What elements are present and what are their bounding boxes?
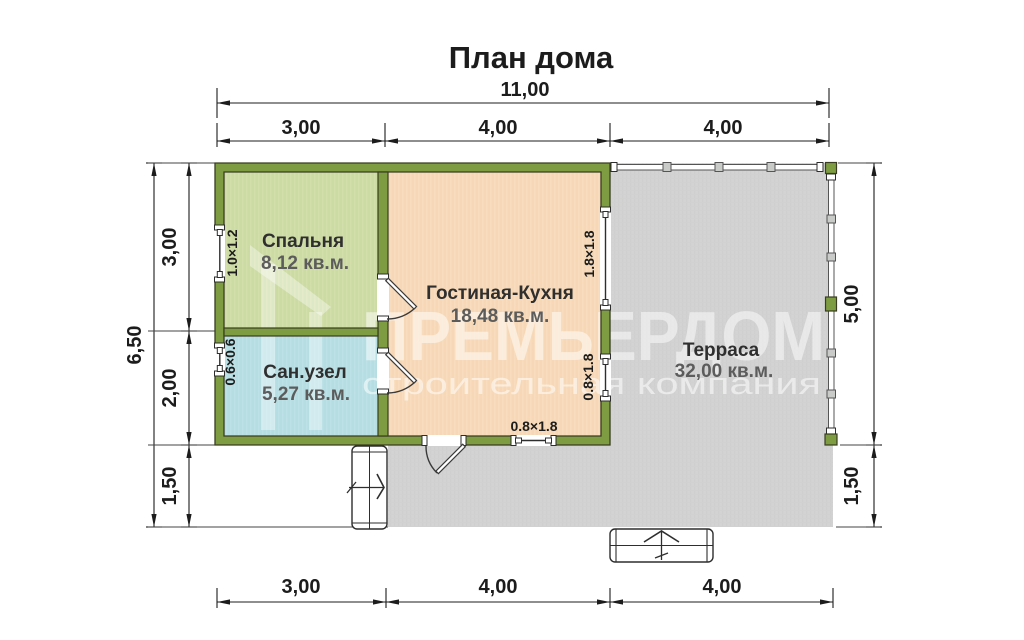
svg-text:32,00 кв.м.: 32,00 кв.м. [675,361,774,382]
svg-text:5,00: 5,00 [841,285,863,324]
svg-text:2,00: 2,00 [159,369,181,408]
svg-text:4,00: 4,00 [703,576,742,598]
svg-text:1,50: 1,50 [841,467,863,506]
svg-text:6,50: 6,50 [124,326,146,365]
svg-text:3,00: 3,00 [282,117,321,139]
svg-text:1.0×1.2: 1.0×1.2 [224,229,240,276]
svg-text:0.6×0.6: 0.6×0.6 [222,338,238,385]
svg-text:1.8×1.8: 1.8×1.8 [581,230,597,277]
svg-text:Гостиная-Кухня: Гостиная-Кухня [426,283,574,304]
svg-text:Терраса: Терраса [683,340,760,361]
svg-text:3,00: 3,00 [159,228,181,267]
svg-text:4,00: 4,00 [479,576,518,598]
svg-text:0.8×1.8: 0.8×1.8 [510,418,557,434]
svg-text:18,48 кв.м.: 18,48 кв.м. [451,306,550,327]
svg-text:3,00: 3,00 [282,576,321,598]
svg-text:План дома: План дома [449,40,614,75]
svg-text:Сан.узел: Сан.узел [263,362,346,383]
svg-text:Спальня: Спальня [262,231,344,252]
svg-text:4,00: 4,00 [704,117,743,139]
svg-text:1,50: 1,50 [159,467,181,506]
svg-text:4,00: 4,00 [479,117,518,139]
svg-text:8,12 кв.м.: 8,12 кв.м. [261,253,349,274]
svg-text:5,27 кв.м.: 5,27 кв.м. [262,384,350,405]
svg-text:11,00: 11,00 [501,79,550,101]
svg-text:0.8×1.8: 0.8×1.8 [580,353,596,400]
